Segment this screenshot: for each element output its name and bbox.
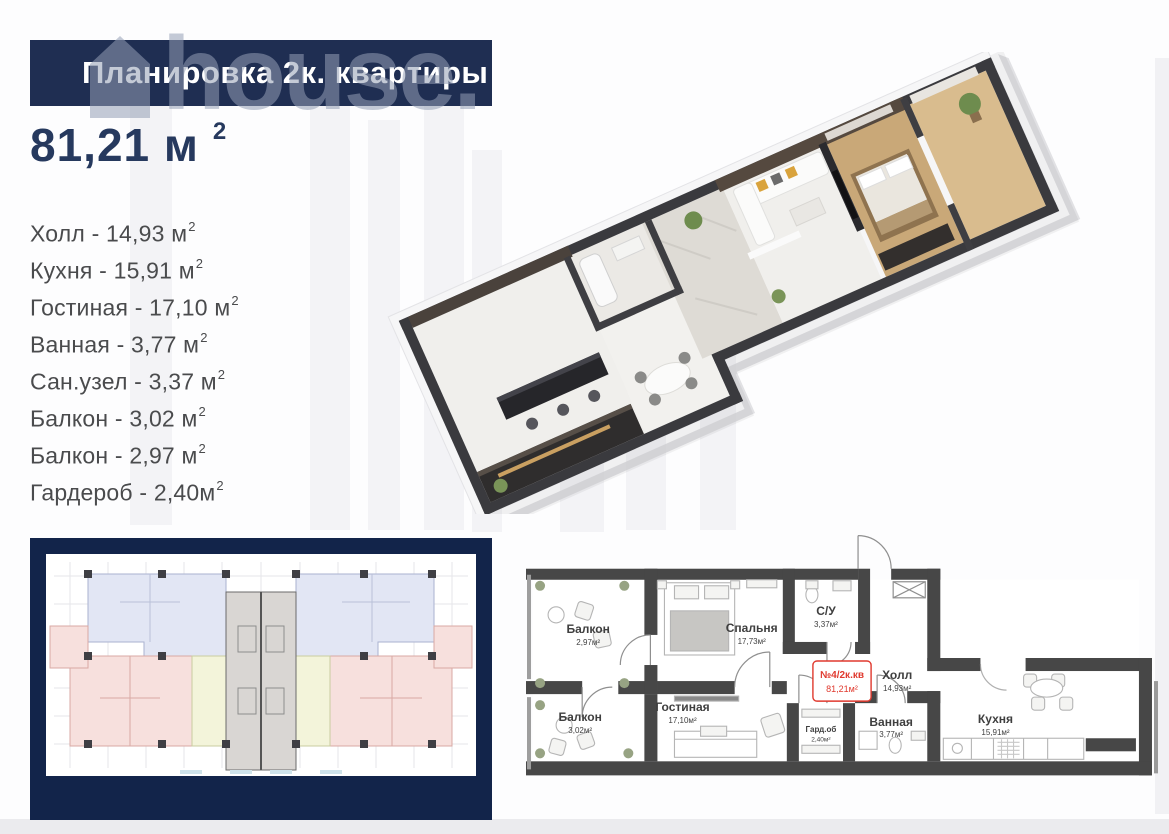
room-list-item: Балкон - 3,02 м2 [30, 398, 238, 435]
building-plan-frame [30, 538, 492, 820]
label-hall: Холл [882, 668, 912, 682]
unit-number: №4/2к.кв [820, 670, 864, 681]
unit-number-badge: №4/2к.кв 81,21м² [813, 661, 871, 701]
render-3d [368, 52, 1168, 514]
room-list-item: Сан.узел - 3,37 м2 [30, 361, 238, 398]
room-list-item: Ванная - 3,77 м2 [30, 324, 238, 361]
flyer-page: Планировка 2к. квартиры house. 81,21 м2 … [0, 0, 1169, 834]
room-list: Холл - 14,93 м2 Кухня - 15,91 м2 Гостина… [30, 213, 238, 510]
room-list-item: Кухня - 15,91 м2 [30, 250, 238, 287]
area-balcony-bottom: 3,02м² [568, 726, 592, 735]
label-balcony-bottom: Балкон [558, 710, 601, 724]
area-bath: 3,77м² [879, 730, 903, 739]
bg-stripe [310, 65, 350, 530]
area-hall: 14,93м² [883, 684, 912, 693]
total-area-sup: 2 [213, 118, 226, 145]
label-living: Гостиная [655, 700, 709, 714]
unit-area: 81,21м² [826, 684, 858, 694]
label-bath: Ванная [869, 715, 913, 729]
total-area: 81,21 м2 [30, 118, 212, 172]
area-wc: 3,37м² [814, 620, 838, 629]
room-list-item: Гостиная - 17,10 м2 [30, 287, 238, 324]
area-wardrobe: 2,40м² [811, 736, 831, 743]
area-kitchen: 15,91м² [981, 728, 1010, 737]
room-list-item: Холл - 14,93 м2 [30, 213, 238, 250]
room-list-item: Балкон - 2,97 м2 [30, 435, 238, 472]
area-bedroom: 17,73м² [738, 637, 767, 646]
bottom-strip [0, 819, 1169, 834]
apartment-units [50, 574, 472, 770]
total-area-value: 81,21 м [30, 119, 199, 171]
area-living: 17,10м² [668, 716, 697, 725]
label-bedroom: Спальня [726, 621, 778, 635]
label-balcony-top: Балкон [566, 622, 609, 636]
area-balcony-top: 2,97м² [576, 638, 600, 647]
floor-plan-2d: Балкон 2,97м² Спальня 17,73м² С/У 3,37м²… [524, 532, 1158, 784]
label-kitchen: Кухня [978, 712, 1013, 726]
room-list-item: Гардероб - 2,40м2 [30, 472, 238, 509]
label-wardrobe: Гард.об [806, 725, 837, 734]
shaft-symbol [893, 582, 925, 598]
label-wc: С/У [816, 604, 836, 618]
